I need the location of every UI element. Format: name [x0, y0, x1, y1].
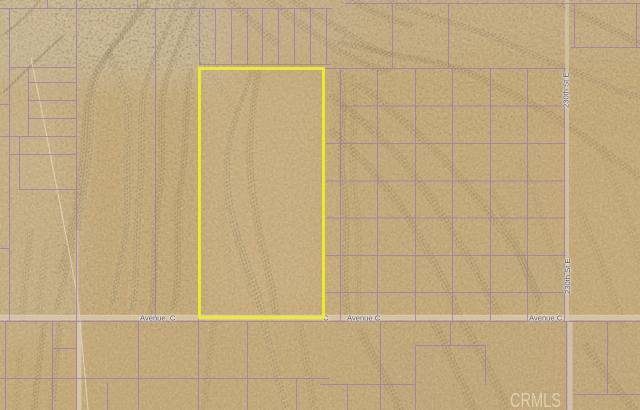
svg-text:CRMLS: CRMLS [510, 389, 561, 410]
svg-text:230th St E: 230th St E [562, 73, 571, 108]
svg-text:230th St E: 230th St E [563, 259, 572, 294]
svg-text:Avenue C: Avenue C [140, 314, 176, 323]
svg-text:Avenue C: Avenue C [347, 314, 381, 323]
svg-text:Avenue C: Avenue C [529, 314, 563, 323]
